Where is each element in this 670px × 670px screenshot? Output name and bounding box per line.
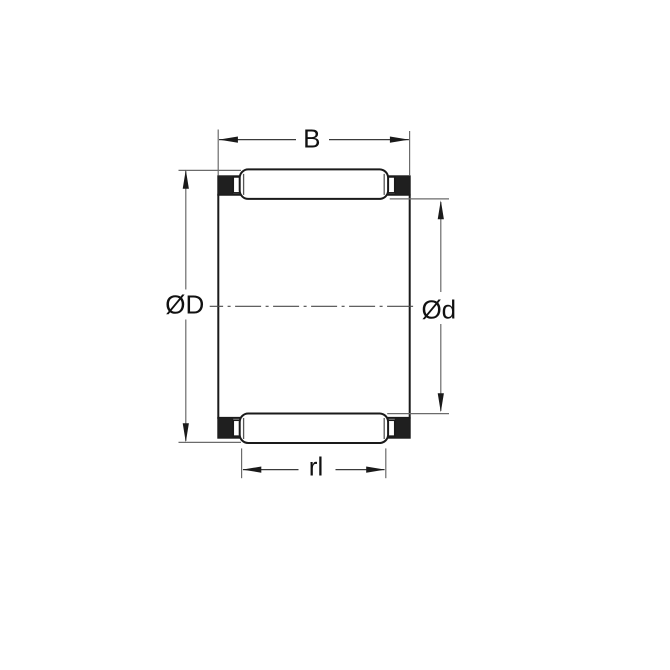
svg-text:B: B	[303, 123, 320, 153]
svg-text:ØD: ØD	[165, 289, 204, 319]
svg-text:rl: rl	[309, 452, 323, 482]
svg-text:Ød: Ød	[421, 295, 456, 325]
